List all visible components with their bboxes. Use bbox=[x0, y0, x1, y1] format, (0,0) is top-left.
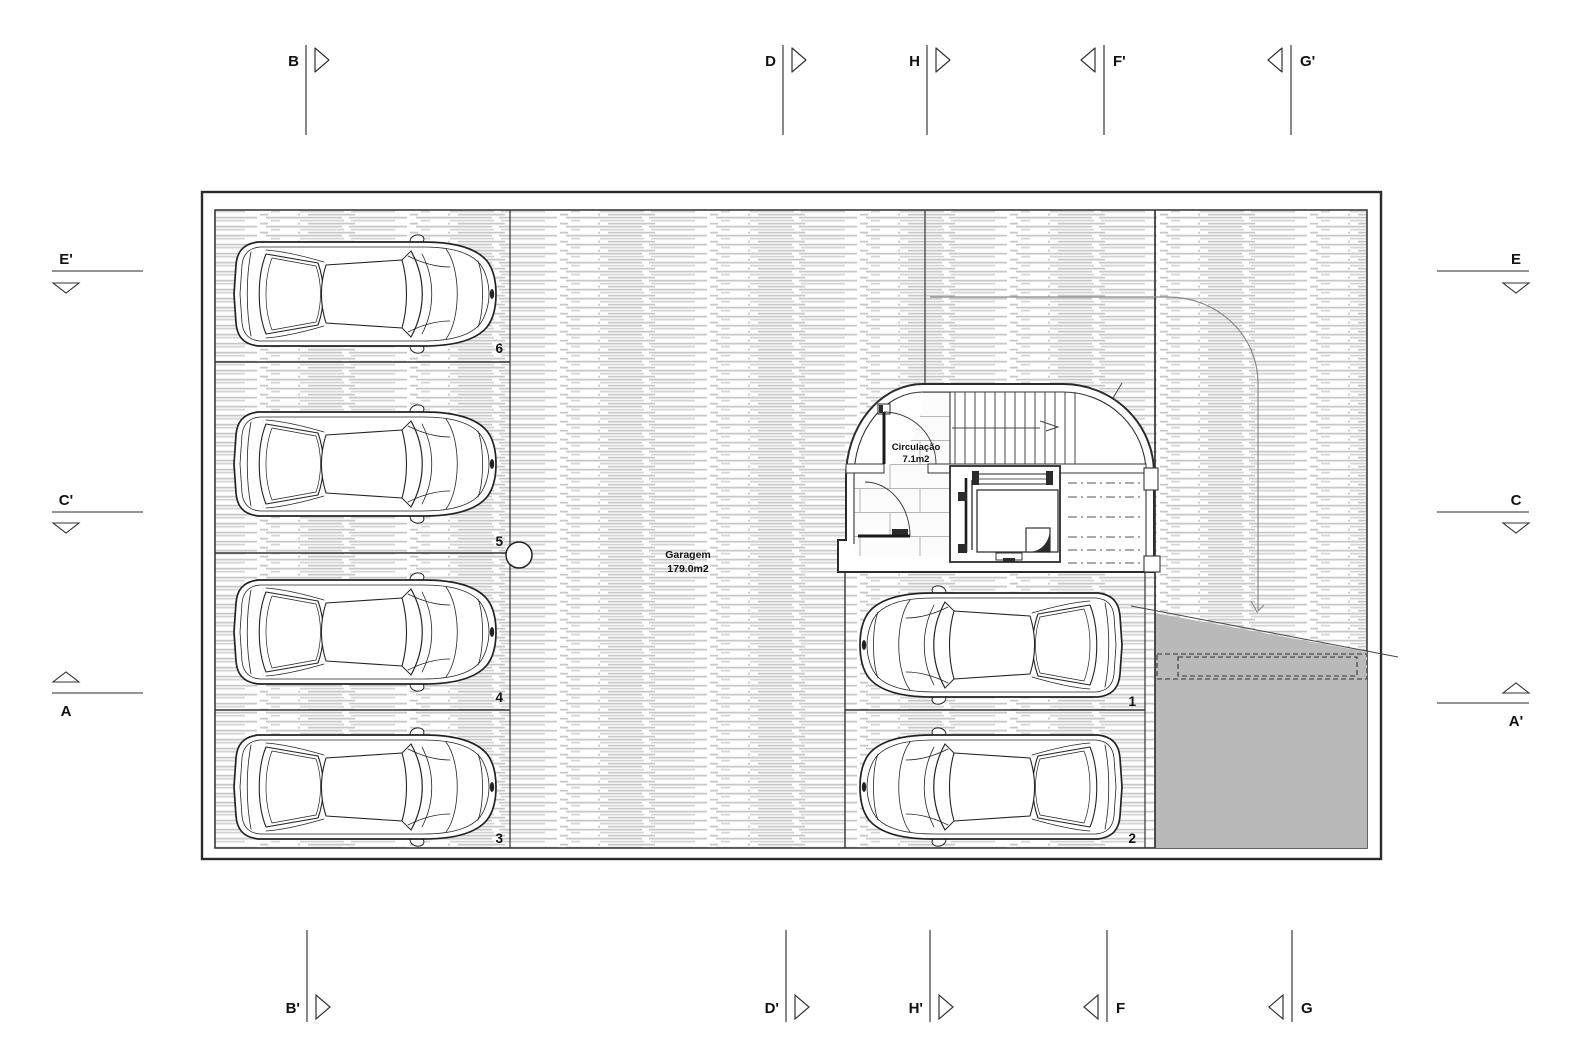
section-arrow-icon bbox=[1269, 995, 1283, 1019]
wall-pilaster bbox=[1144, 468, 1158, 490]
stall-number-1: 1 bbox=[1128, 694, 1136, 709]
section-marker-A-prime: A' bbox=[1437, 683, 1529, 730]
garage-plan: Circulação 7.1m2 1 2 3 4 5 6 Garagem 179… bbox=[202, 192, 1398, 859]
section-arrow-icon bbox=[939, 995, 953, 1019]
car-stall-4 bbox=[234, 571, 496, 692]
circulation-label: Circulação bbox=[892, 442, 941, 453]
section-marker-C-prime: C' bbox=[52, 492, 143, 533]
svg-text:A: A bbox=[61, 703, 72, 720]
car-stall-5 bbox=[234, 403, 496, 524]
floor-plan-drawing: Circulação 7.1m2 1 2 3 4 5 6 Garagem 179… bbox=[0, 0, 1572, 1058]
section-arrow-icon bbox=[53, 523, 79, 533]
section-arrow-icon bbox=[53, 283, 79, 293]
elevator bbox=[950, 466, 1060, 562]
section-marker-F: F bbox=[1084, 930, 1125, 1022]
svg-text:C: C bbox=[1511, 492, 1522, 509]
section-marker-F-prime: F' bbox=[1081, 45, 1126, 135]
svg-text:F: F bbox=[1116, 1000, 1125, 1017]
svg-text:D': D' bbox=[765, 1000, 779, 1017]
svg-text:C': C' bbox=[59, 492, 73, 509]
car-stall-6 bbox=[234, 233, 496, 354]
svg-text:H: H bbox=[909, 53, 920, 70]
section-marker-D: D bbox=[765, 45, 806, 135]
section-markers-top: B D H F' G' bbox=[288, 45, 1315, 135]
section-marker-E: E bbox=[1437, 251, 1529, 293]
section-arrow-icon bbox=[936, 48, 950, 72]
section-arrow-icon bbox=[1084, 995, 1098, 1019]
section-arrow-icon bbox=[1268, 48, 1282, 72]
section-marker-G: G bbox=[1269, 930, 1313, 1022]
section-marker-H-prime: H' bbox=[909, 930, 953, 1022]
svg-text:F': F' bbox=[1113, 53, 1126, 70]
section-arrow-icon bbox=[1503, 283, 1529, 293]
section-marker-B-prime: B' bbox=[286, 930, 330, 1022]
svg-text:B: B bbox=[288, 53, 299, 70]
svg-text:E': E' bbox=[59, 251, 73, 268]
section-marker-A: A bbox=[52, 672, 143, 720]
svg-text:D: D bbox=[765, 53, 776, 70]
svg-text:E: E bbox=[1511, 251, 1521, 268]
section-markers-bottom: B' D' H' F G bbox=[286, 930, 1313, 1022]
section-marker-D-prime: D' bbox=[765, 930, 809, 1022]
section-arrow-icon bbox=[53, 672, 79, 682]
section-marker-C: C bbox=[1437, 492, 1529, 533]
car-stall-3 bbox=[234, 726, 496, 847]
section-marker-B: B bbox=[288, 45, 329, 135]
svg-text:A': A' bbox=[1509, 713, 1523, 730]
stall-number-4: 4 bbox=[495, 690, 503, 705]
garage-area: 179.0m2 bbox=[667, 563, 709, 575]
svg-text:G': G' bbox=[1300, 53, 1315, 70]
stall-number-3: 3 bbox=[495, 831, 503, 846]
section-arrow-icon bbox=[792, 48, 806, 72]
section-arrow-icon bbox=[315, 48, 329, 72]
section-marker-H: H bbox=[909, 45, 950, 135]
circulation-area: 7.1m2 bbox=[903, 454, 930, 465]
car-stall-2 bbox=[860, 726, 1122, 847]
floor-plan-sheet: Circulação 7.1m2 1 2 3 4 5 6 Garagem 179… bbox=[0, 0, 1572, 1058]
svg-text:H': H' bbox=[909, 1000, 923, 1017]
svg-text:B': B' bbox=[286, 1000, 300, 1017]
car-stall-1 bbox=[860, 584, 1122, 705]
section-arrow-icon bbox=[1503, 523, 1529, 533]
ramp-slab bbox=[1155, 613, 1367, 848]
section-arrow-icon bbox=[316, 995, 330, 1019]
stall-number-2: 2 bbox=[1128, 831, 1136, 846]
svg-text:G: G bbox=[1301, 1000, 1313, 1017]
column bbox=[506, 542, 532, 568]
stall-number-6: 6 bbox=[495, 341, 503, 356]
section-markers-left: E' C' A bbox=[52, 251, 143, 720]
core-wall-segment bbox=[846, 464, 884, 473]
section-arrow-icon bbox=[1081, 48, 1095, 72]
section-marker-G-prime: G' bbox=[1268, 45, 1315, 135]
section-marker-E-prime: E' bbox=[52, 251, 143, 293]
stair-core: Circulação 7.1m2 bbox=[838, 384, 1160, 572]
section-markers-right: E C A' bbox=[1437, 251, 1529, 730]
stall-number-5: 5 bbox=[495, 534, 503, 549]
section-arrow-icon bbox=[1503, 683, 1529, 693]
section-arrow-icon bbox=[795, 995, 809, 1019]
garage-label: Garagem bbox=[665, 549, 711, 561]
wall-pilaster bbox=[1144, 556, 1160, 572]
